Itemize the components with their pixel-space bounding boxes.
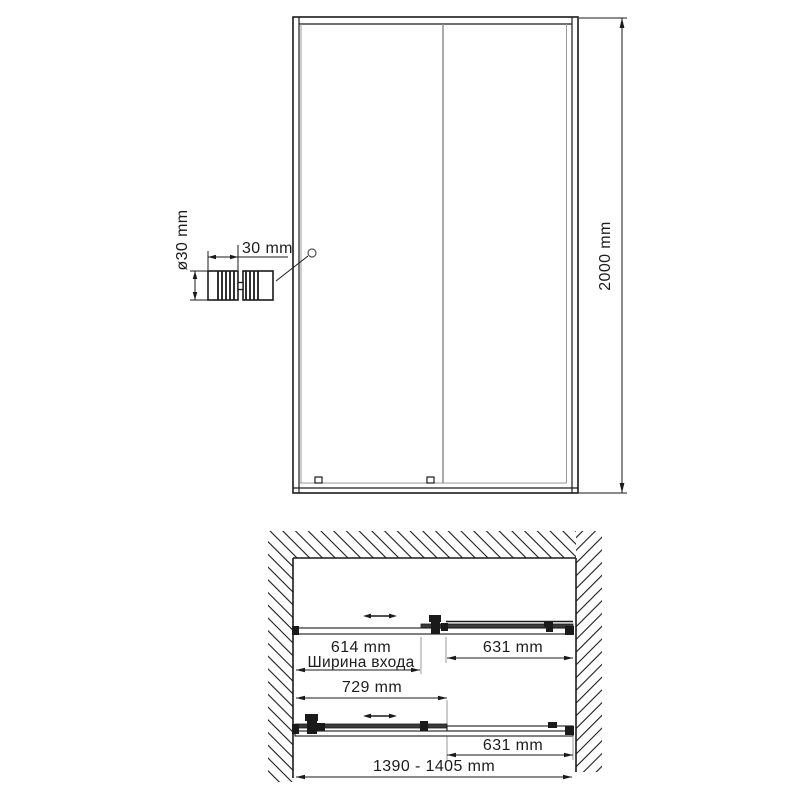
handle-diameter-dimension: ø30 mm	[174, 209, 208, 300]
sliding-panel-label: 729 mm	[342, 679, 402, 696]
front-view	[293, 17, 578, 493]
handle-detail: 30 mm ø30 mm	[174, 209, 308, 300]
fixed-panel-label-closed: 631 mm	[483, 737, 543, 754]
fixed-panel-label-open: 631 mm	[483, 639, 543, 656]
handle-width-dimension: 30 mm	[208, 240, 293, 270]
entrance-width-caption: Ширина входа	[308, 654, 415, 671]
technical-drawing-page: 2000 mm 30 mm	[0, 0, 800, 800]
entrance-width-dimension: 614 mm Ширина входа	[296, 637, 421, 674]
handle-width-label: 30 mm	[242, 240, 293, 257]
plan-view: 614 mm Ширина входа 631 mm 729 mm	[268, 531, 602, 782]
sliding-panel-dimension: 729 mm	[296, 679, 447, 760]
move-arrow-icon	[363, 714, 397, 719]
wall-hatch-right	[576, 531, 602, 772]
overall-width-dimension: 1390 - 1405 mm	[296, 758, 572, 779]
fixed-panel-dimension-open: 631 mm	[446, 637, 573, 663]
move-arrow-icon	[363, 614, 397, 619]
door-closed-row	[292, 714, 574, 736]
handle-knob	[208, 271, 273, 300]
height-dimension-label: 2000 mm	[597, 221, 614, 291]
door-handle-circle	[308, 249, 316, 257]
handle-diameter-label: ø30 mm	[174, 209, 191, 270]
wall-hatch-top	[268, 531, 576, 558]
bottom-rail-closed	[295, 731, 573, 736]
fixed-panel-dimension-closed: 631 mm	[447, 736, 573, 760]
front-view-frame	[293, 17, 578, 493]
shower-door-technical-drawing: 2000 mm 30 mm	[0, 0, 800, 800]
height-dimension: 2000 mm	[579, 18, 627, 493]
door-open-row	[292, 614, 574, 635]
overall-width-label: 1390 - 1405 mm	[373, 758, 495, 775]
wall-hatch-left	[268, 558, 293, 782]
